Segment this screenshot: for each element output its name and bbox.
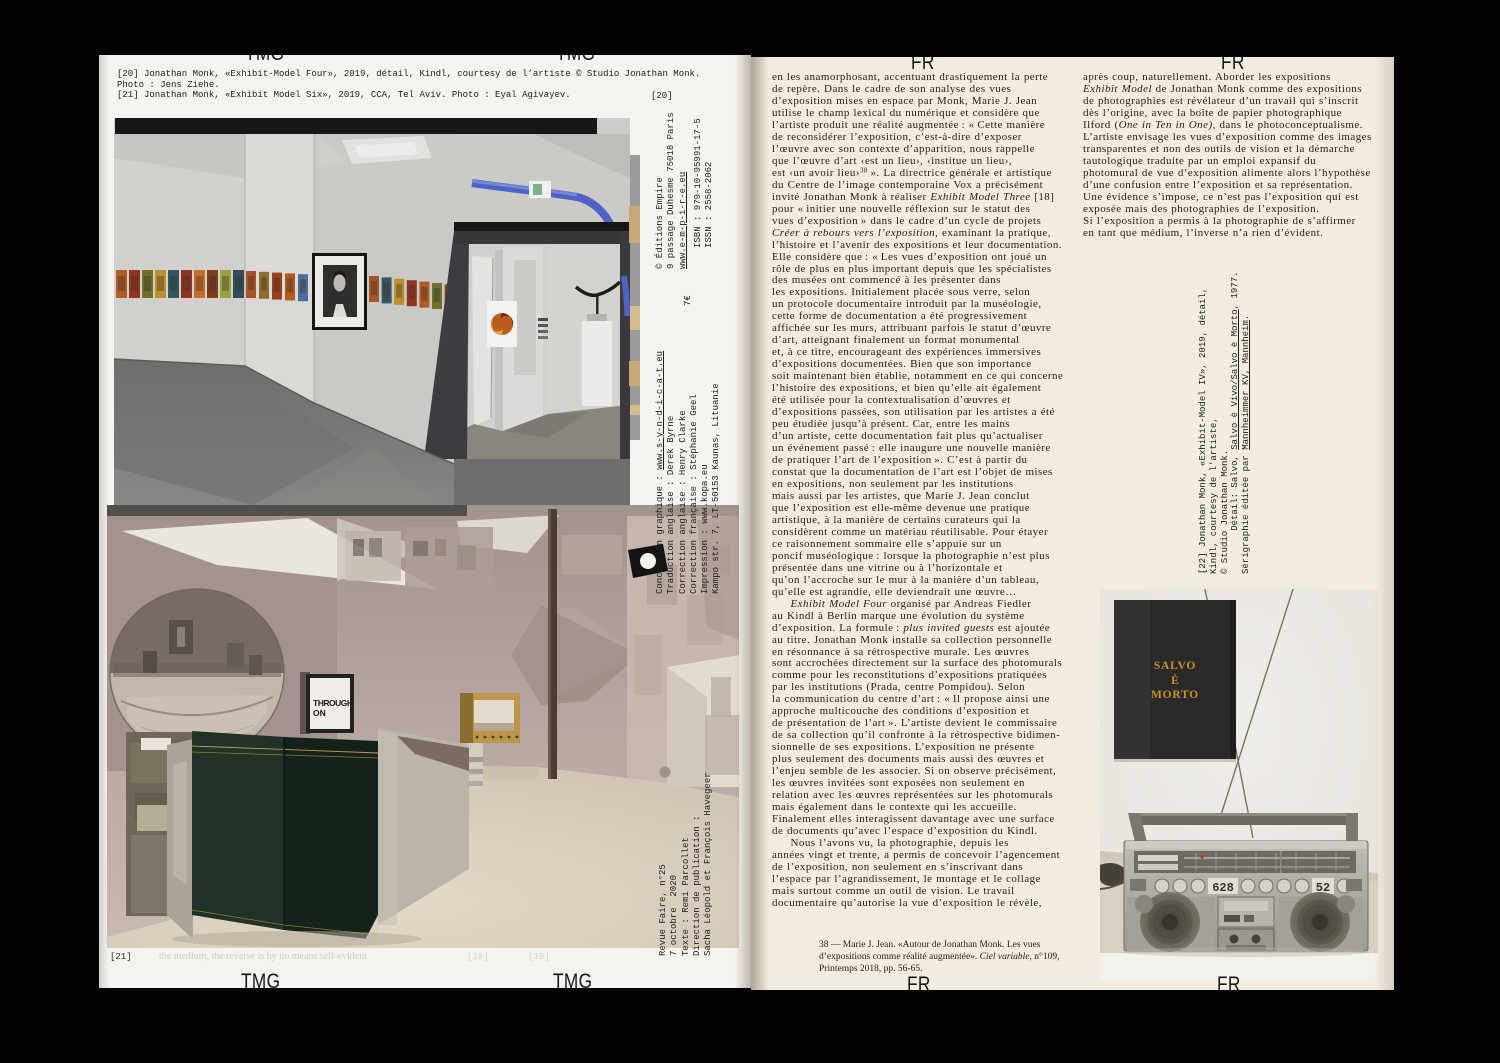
svg-text:È: È [1171,673,1179,687]
svg-text:THROUGH: THROUGH [313,698,353,708]
svg-text:SALVO: SALVO [1154,660,1196,672]
svg-text:ON: ON [313,708,326,718]
svg-text:MORTO: MORTO [1151,689,1199,701]
svg-text:628: 628 [1212,881,1234,895]
